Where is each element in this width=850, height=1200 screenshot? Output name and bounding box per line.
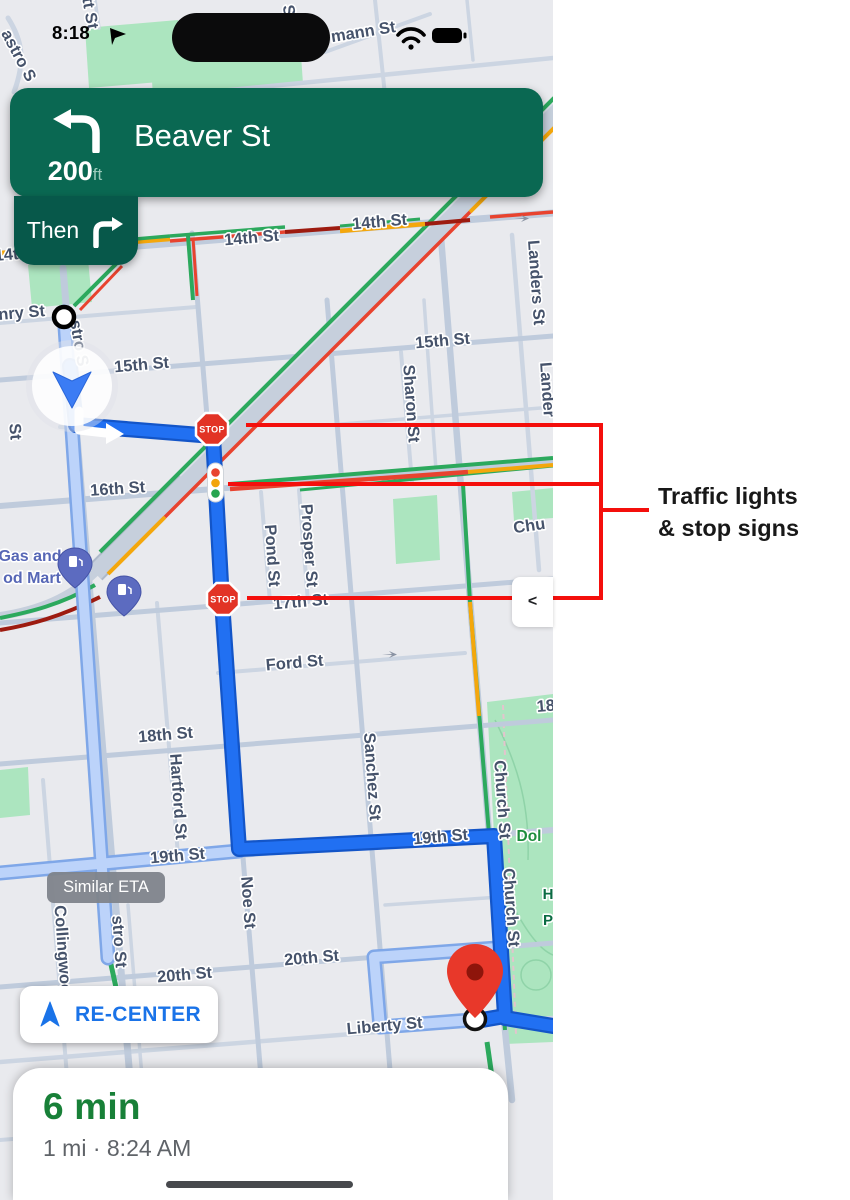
instruction-street: Beaver St bbox=[134, 118, 270, 154]
battery-icon bbox=[432, 28, 467, 43]
distance-text: 200ft bbox=[48, 158, 103, 185]
park-label: H bbox=[543, 886, 554, 903]
recenter-label: RE-CENTER bbox=[75, 1003, 201, 1027]
left-turn-arrow-icon bbox=[44, 101, 106, 153]
then-maneuver-chip[interactable]: Then bbox=[14, 196, 138, 265]
recenter-arrow-icon bbox=[37, 1001, 63, 1029]
wifi-icon bbox=[398, 29, 424, 50]
recenter-button[interactable]: RE-CENTER bbox=[20, 986, 218, 1043]
collapse-panel-button[interactable]: < bbox=[512, 577, 553, 627]
dynamic-island bbox=[172, 13, 330, 62]
stop-sign-icon: STOP bbox=[196, 413, 228, 445]
stop-sign-icon: STOP bbox=[207, 583, 239, 615]
location-arrow-icon bbox=[110, 28, 126, 45]
stop-sign-label: STOP bbox=[210, 595, 236, 605]
poi-label: od Mart bbox=[3, 570, 61, 587]
poi-label: Gas and bbox=[0, 548, 62, 565]
annotation-text: Traffic lights & stop signs bbox=[658, 480, 799, 544]
status-bar: 8:18 bbox=[0, 0, 553, 58]
screenshot-canvas: 14th St14th St15th St15th St16th St17th … bbox=[0, 0, 850, 1200]
similar-eta-tooltip[interactable]: Similar ETA bbox=[47, 872, 165, 903]
street-label: Noe St bbox=[237, 876, 259, 930]
collapse-chevron-icon: < bbox=[528, 593, 537, 611]
traffic-light-icon bbox=[208, 463, 224, 502]
eta-duration: 6 min bbox=[43, 1086, 508, 1128]
distance-unit: ft bbox=[93, 165, 102, 184]
home-indicator[interactable] bbox=[166, 1181, 353, 1188]
park-label: P bbox=[543, 912, 553, 929]
navigation-banner[interactable]: 200ft Beaver St bbox=[10, 88, 543, 197]
annotation-line2: & stop signs bbox=[658, 512, 799, 544]
park-label: Dol bbox=[517, 828, 542, 845]
street-label: St bbox=[5, 423, 24, 441]
then-label: Then bbox=[27, 217, 79, 244]
transit-stop-dot-icon bbox=[54, 307, 74, 327]
right-turn-arrow-icon bbox=[89, 214, 125, 248]
eta-details: 1 mi · 8:24 AM bbox=[43, 1135, 508, 1162]
stop-sign-label: STOP bbox=[199, 425, 225, 435]
annotation-line1: Traffic lights bbox=[658, 480, 799, 512]
street-label: stro St bbox=[108, 915, 130, 969]
similar-eta-label: Similar ETA bbox=[63, 878, 149, 897]
distance-value: 200 bbox=[48, 156, 93, 186]
navigation-puck-icon bbox=[26, 340, 118, 432]
